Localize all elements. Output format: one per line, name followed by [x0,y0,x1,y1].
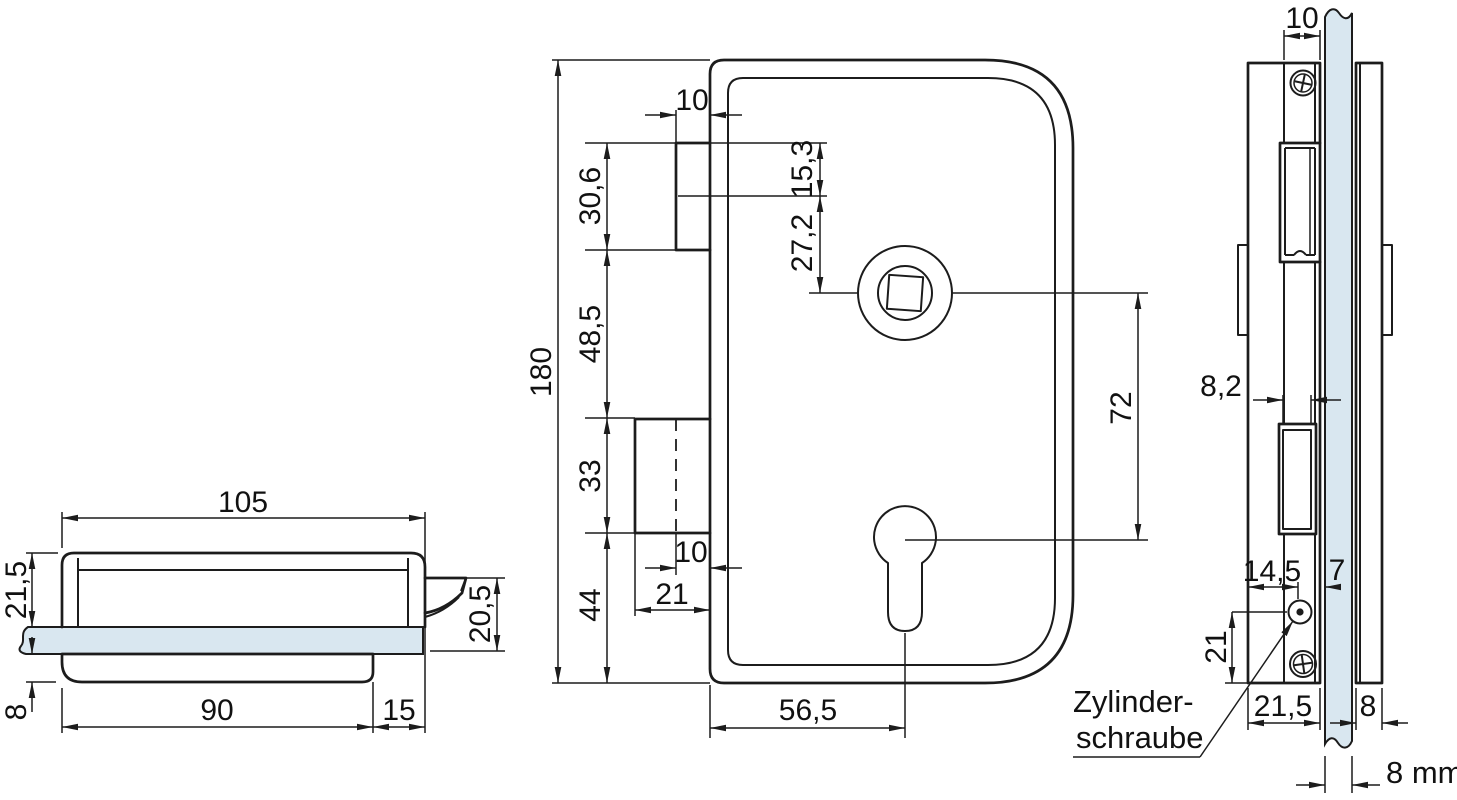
hook-latch [425,578,466,617]
dim-label-30-6: 30,6 [574,167,607,225]
lock-case-edge [1238,63,1320,683]
cylinder-screw [1289,601,1312,624]
dim-label-tab-10: 10 [675,84,708,117]
dim-label-105: 105 [218,486,268,519]
dim-label-edge-21: 21 [1200,630,1233,663]
dim-label-15-3: 15,3 [786,140,819,198]
dim-label-glass-8mm: 8 mm [1386,755,1457,790]
dim-label-72: 72 [1105,391,1138,424]
dim-side-latch-20-5: 20,5 [430,578,505,651]
dim-label-180: 180 [525,347,558,397]
callout-line1: Zylinder- [1073,684,1194,719]
dim-label-lower-10: 10 [674,536,707,569]
dim-label-27-2: 27,2 [786,214,819,272]
phillips-screw-top [1291,71,1316,96]
spindle-hole [858,246,952,340]
front-view: 180 30,6 48,5 33 44 10 15,3 27,2 [525,60,1148,738]
dim-front-56-5: 56,5 [710,633,905,738]
keyhole [874,506,936,631]
dim-edge-21: 21 [1200,612,1287,683]
dim-label-edge-10: 10 [1285,2,1318,35]
dim-label-14-5: 14,5 [1243,555,1301,588]
dim-label-21-5: 21,5 [0,561,33,619]
technical-drawing-page: 105 21,5 8 20,5 90 15 [0,0,1457,800]
side-view: 105 21,5 8 20,5 90 15 [0,486,505,733]
dim-edge-top-10: 10 [1284,2,1320,60]
dim-side-height-21-5: 21,5 [0,553,58,627]
cylinder-screw-callout: Zylinder- schraube [1073,621,1293,757]
lock-case-side [62,553,425,627]
dim-label-8: 8 [0,704,33,721]
callout-line2: schraube [1076,720,1204,755]
latch-slot [1280,143,1320,262]
lock-dimension-drawing: 105 21,5 8 20,5 90 15 [0,0,1457,800]
plate-right-boss [1382,245,1392,335]
dim-label-21: 21 [655,578,688,611]
glass-panel-edge [1325,9,1352,793]
dim-label-20-5: 20,5 [464,585,497,643]
glass-panel-side [20,627,423,654]
dim-label-7: 7 [1329,554,1346,587]
cover-plate-side [62,654,373,682]
dim-label-8-2: 8,2 [1200,370,1242,403]
dim-label-90: 90 [200,694,233,727]
dim-label-56-5: 56,5 [779,694,837,727]
dim-label-15: 15 [382,694,415,727]
dim-front-15-3-27-2: 15,3 27,2 [678,140,858,293]
dim-front-72: 72 [905,293,1148,540]
dim-label-33: 33 [574,459,607,492]
dim-label-48-5: 48,5 [574,305,607,363]
dim-side-90-15: 90 15 [62,682,425,733]
case-left-boss [1238,245,1248,335]
dim-glass-thickness: 8 mm [1296,755,1457,790]
phillips-screw-bottom [1290,651,1316,677]
dim-label-44: 44 [574,588,607,621]
bolt-slot [1279,424,1316,534]
counter-plate-edge [1356,63,1392,683]
dim-label-edge-21-5: 21,5 [1254,690,1312,723]
lower-tab [635,419,710,533]
dim-label-edge-8: 8 [1360,690,1377,723]
dim-side-width-105: 105 [62,486,425,733]
lock-body-front [710,60,1073,683]
